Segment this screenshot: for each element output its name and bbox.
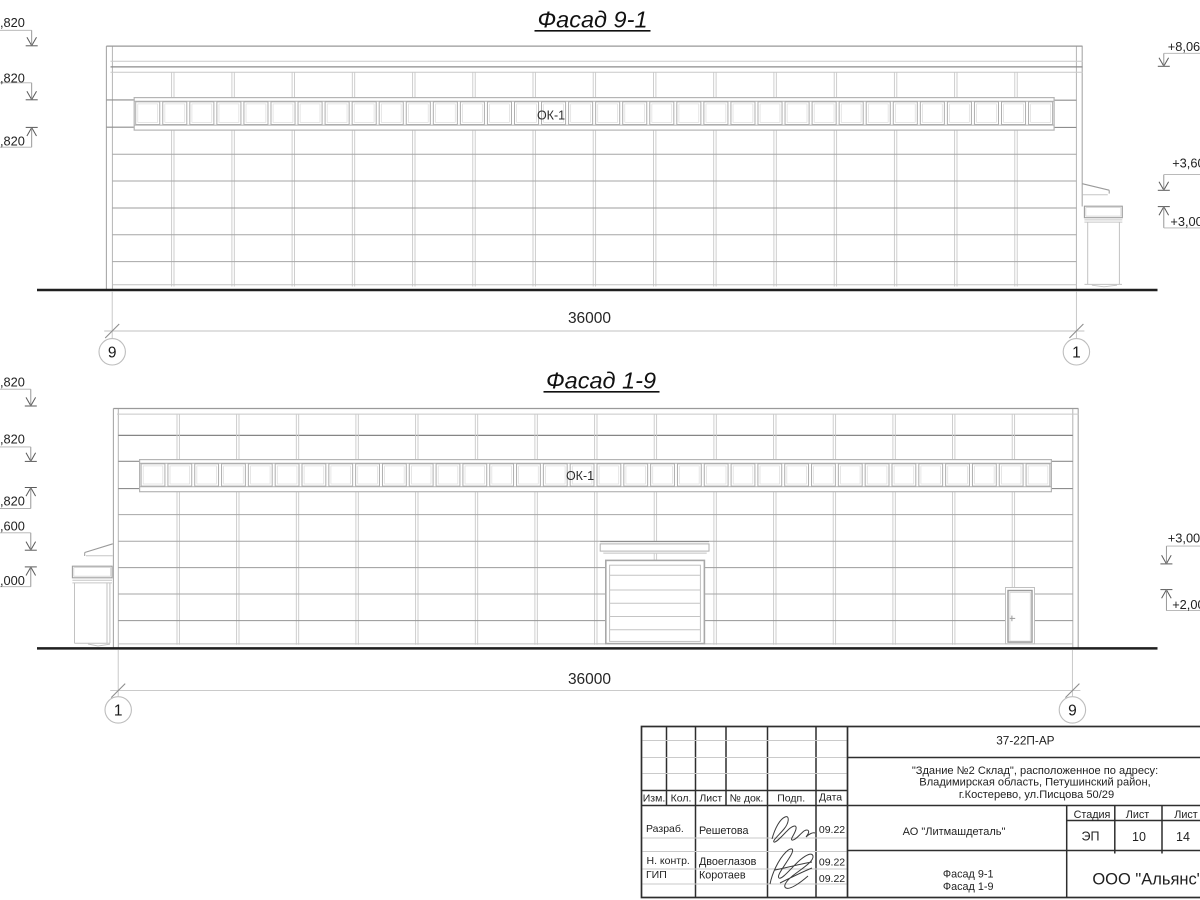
- svg-text:Решетова: Решетова: [699, 825, 749, 837]
- svg-text:Кол.: Кол.: [671, 793, 692, 805]
- svg-text:Разраб.: Разраб.: [646, 823, 684, 835]
- svg-text:Изм.: Изм.: [643, 793, 666, 805]
- svg-text:Владимирская область, Петушинс: Владимирская область, Петушинский район,: [919, 777, 1150, 789]
- svg-text:+3,600: +3,600: [1172, 156, 1200, 171]
- svg-text:Фасад 9-1: Фасад 9-1: [943, 868, 994, 880]
- svg-text:Коротаев: Коротаев: [699, 870, 746, 882]
- svg-text:ГИП: ГИП: [646, 869, 667, 881]
- svg-text:Стадия: Стадия: [1074, 809, 1111, 821]
- svg-text:,820: ,820: [0, 70, 25, 85]
- svg-text:,820: ,820: [0, 15, 25, 30]
- svg-text:Фасад 1-9: Фасад 1-9: [943, 881, 994, 893]
- svg-text:14: 14: [1176, 830, 1190, 844]
- svg-text:ОК-1: ОК-1: [566, 469, 594, 483]
- svg-text:,820: ,820: [0, 494, 25, 509]
- svg-text:09.22: 09.22: [819, 824, 845, 836]
- svg-text:,820: ,820: [0, 375, 25, 390]
- svg-text:г.Костерево, ул.Писцова 50/29: г.Костерево, ул.Писцова 50/29: [959, 789, 1114, 801]
- svg-text:Лист: Лист: [1126, 809, 1150, 821]
- svg-text:Фасад 1-9: Фасад 1-9: [546, 368, 656, 394]
- svg-text:Н. контр.: Н. контр.: [647, 855, 690, 867]
- svg-text:09.22: 09.22: [819, 873, 845, 885]
- svg-text:ООО "Альянс": ООО "Альянс": [1092, 871, 1200, 889]
- svg-text:Двоеглазов: Двоеглазов: [699, 856, 757, 868]
- svg-text:,820: ,820: [0, 432, 25, 447]
- svg-text:9: 9: [1068, 703, 1077, 720]
- svg-text:1: 1: [1072, 344, 1081, 361]
- svg-text:Подп.: Подп.: [777, 793, 805, 805]
- svg-text:АО "Литмашдеталь": АО "Литмашдеталь": [903, 826, 1006, 838]
- svg-text:,000: ,000: [0, 573, 25, 588]
- svg-text:№ док.: № док.: [730, 793, 764, 805]
- svg-text:,820: ,820: [0, 134, 25, 149]
- svg-text:36000: 36000: [568, 671, 611, 688]
- svg-text:+2,000: +2,000: [1172, 597, 1200, 612]
- svg-text:36000: 36000: [568, 310, 611, 327]
- svg-text:Лист: Лист: [1174, 809, 1198, 821]
- svg-text:"Здание №2 Склад", расположенн: "Здание №2 Склад", расположенное по адре…: [912, 765, 1158, 777]
- svg-text:Фасад 9-1: Фасад 9-1: [537, 7, 647, 33]
- svg-text:+8,060: +8,060: [1168, 39, 1200, 54]
- svg-text:10: 10: [1132, 830, 1146, 844]
- svg-text:,600: ,600: [0, 518, 25, 533]
- svg-text:Дата: Дата: [819, 792, 842, 804]
- svg-text:ЭП: ЭП: [1082, 830, 1100, 844]
- svg-text:9: 9: [108, 344, 117, 361]
- svg-text:+3,000: +3,000: [1168, 530, 1200, 545]
- svg-text:ОК-1: ОК-1: [537, 109, 565, 123]
- svg-text:+3,000: +3,000: [1170, 214, 1200, 229]
- svg-text:09.22: 09.22: [819, 857, 845, 869]
- svg-text:1: 1: [114, 703, 123, 720]
- svg-text:Лист: Лист: [699, 793, 722, 805]
- svg-text:37-22П-АР: 37-22П-АР: [996, 734, 1054, 748]
